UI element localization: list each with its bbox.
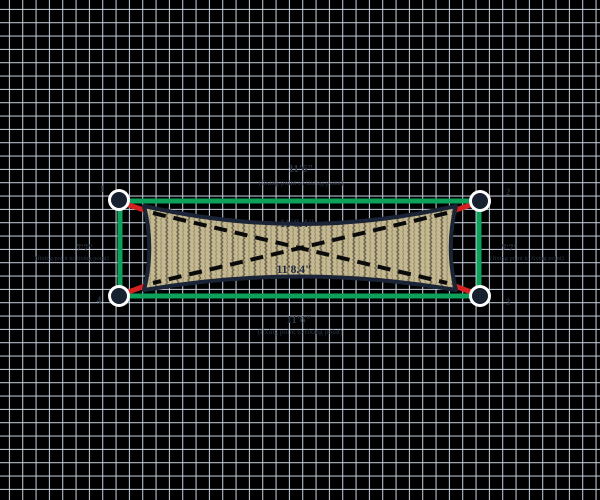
- fixing-point-1-label: 1: [100, 184, 105, 194]
- diagonal-measurement-2: 11'8.4": [277, 264, 312, 276]
- design-canvas: 11'8.4" 11'8.4" 11'6" (fixing point to f…: [0, 0, 600, 500]
- fixing-point-4-label: 4: [97, 295, 102, 305]
- diagonal-measurement-1: 11'8.4": [280, 218, 315, 230]
- fixing-point-4-dot[interactable]: [111, 288, 127, 304]
- fixing-point-2-label: 2: [506, 187, 511, 197]
- dimension-bottom-value: 11'6": [286, 314, 311, 326]
- dimension-bottom-note: (fixing point to fixing point): [258, 327, 343, 336]
- fixing-point-2-dot[interactable]: [472, 193, 488, 209]
- fixing-point-3-dot[interactable]: [472, 288, 488, 304]
- fixing-point-1-dot[interactable]: [111, 192, 127, 208]
- fixing-point-3-label: 3: [506, 297, 511, 307]
- dimension-right-value: 7'7": [502, 243, 519, 253]
- dimension-right-note: (fixing point to fixing point): [490, 255, 564, 262]
- dimension-top-note: (fixing point to fixing point): [259, 178, 344, 187]
- dimension-top-value: 11'6": [288, 163, 313, 175]
- dimension-left-value: 7'7": [77, 243, 94, 253]
- dimension-left-note: (fixing point to fixing point): [35, 255, 109, 262]
